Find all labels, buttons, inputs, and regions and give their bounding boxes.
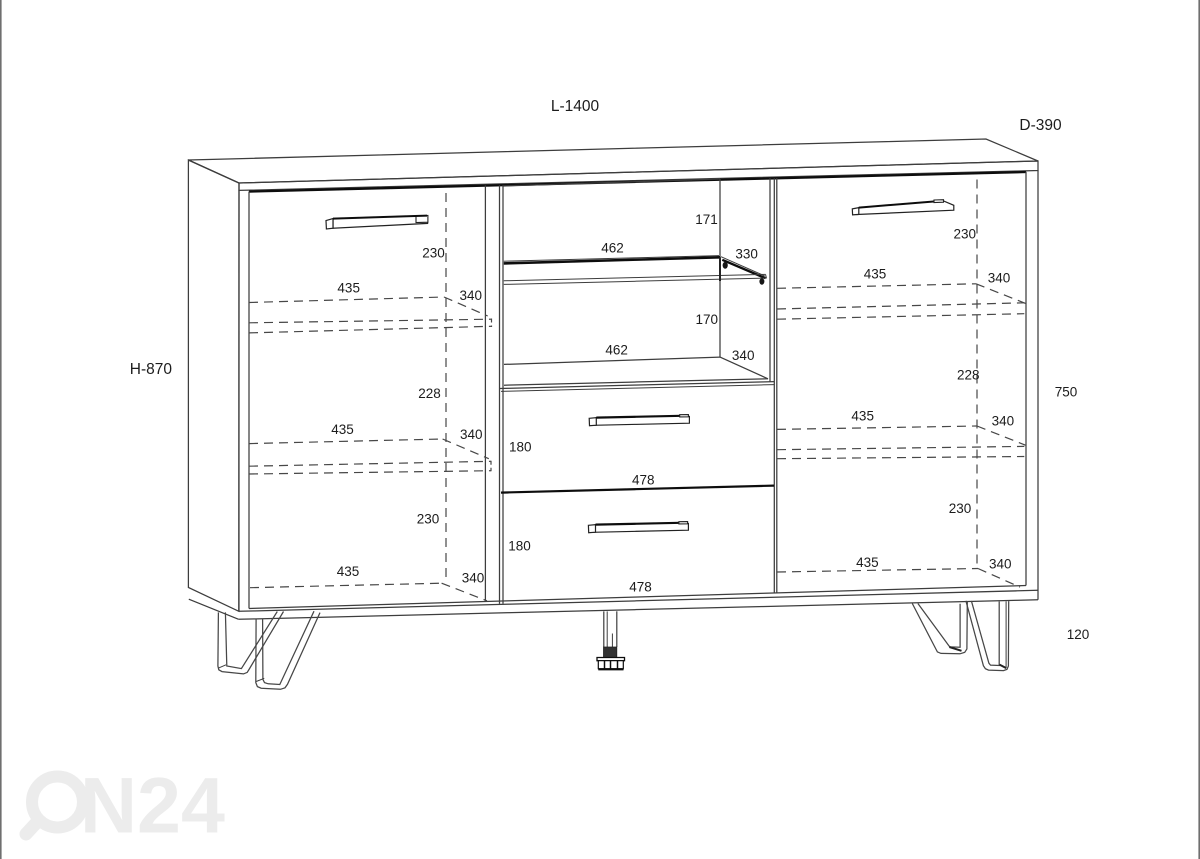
svg-text:340: 340 — [992, 414, 1015, 429]
svg-text:170: 170 — [696, 312, 719, 327]
svg-text:462: 462 — [605, 343, 628, 358]
svg-text:435: 435 — [851, 409, 874, 424]
svg-text:228: 228 — [957, 368, 980, 383]
svg-text:340: 340 — [988, 271, 1011, 286]
svg-text:435: 435 — [864, 267, 887, 282]
svg-text:N24: N24 — [80, 761, 225, 850]
svg-text:340: 340 — [462, 571, 485, 586]
svg-text:230: 230 — [954, 227, 977, 242]
svg-text:L-1400: L-1400 — [551, 98, 600, 115]
svg-text:120: 120 — [1067, 627, 1090, 642]
svg-text:180: 180 — [509, 440, 532, 455]
svg-text:435: 435 — [337, 281, 360, 296]
svg-text:340: 340 — [460, 288, 483, 303]
svg-text:435: 435 — [337, 564, 360, 579]
svg-text:180: 180 — [508, 539, 531, 554]
svg-text:340: 340 — [732, 348, 755, 363]
svg-text:230: 230 — [422, 246, 445, 261]
svg-text:D-390: D-390 — [1019, 117, 1062, 134]
svg-text:478: 478 — [632, 473, 655, 488]
svg-text:171: 171 — [695, 212, 718, 227]
svg-text:478: 478 — [629, 580, 652, 595]
svg-text:H-870: H-870 — [130, 361, 173, 378]
svg-text:435: 435 — [856, 555, 879, 570]
svg-text:230: 230 — [417, 512, 440, 527]
svg-text:462: 462 — [601, 241, 624, 256]
svg-text:750: 750 — [1055, 385, 1078, 400]
svg-text:228: 228 — [418, 386, 441, 401]
svg-text:230: 230 — [949, 501, 972, 516]
svg-text:435: 435 — [331, 422, 354, 437]
svg-text:340: 340 — [989, 557, 1012, 572]
svg-text:330: 330 — [735, 247, 758, 262]
svg-text:340: 340 — [460, 427, 483, 442]
